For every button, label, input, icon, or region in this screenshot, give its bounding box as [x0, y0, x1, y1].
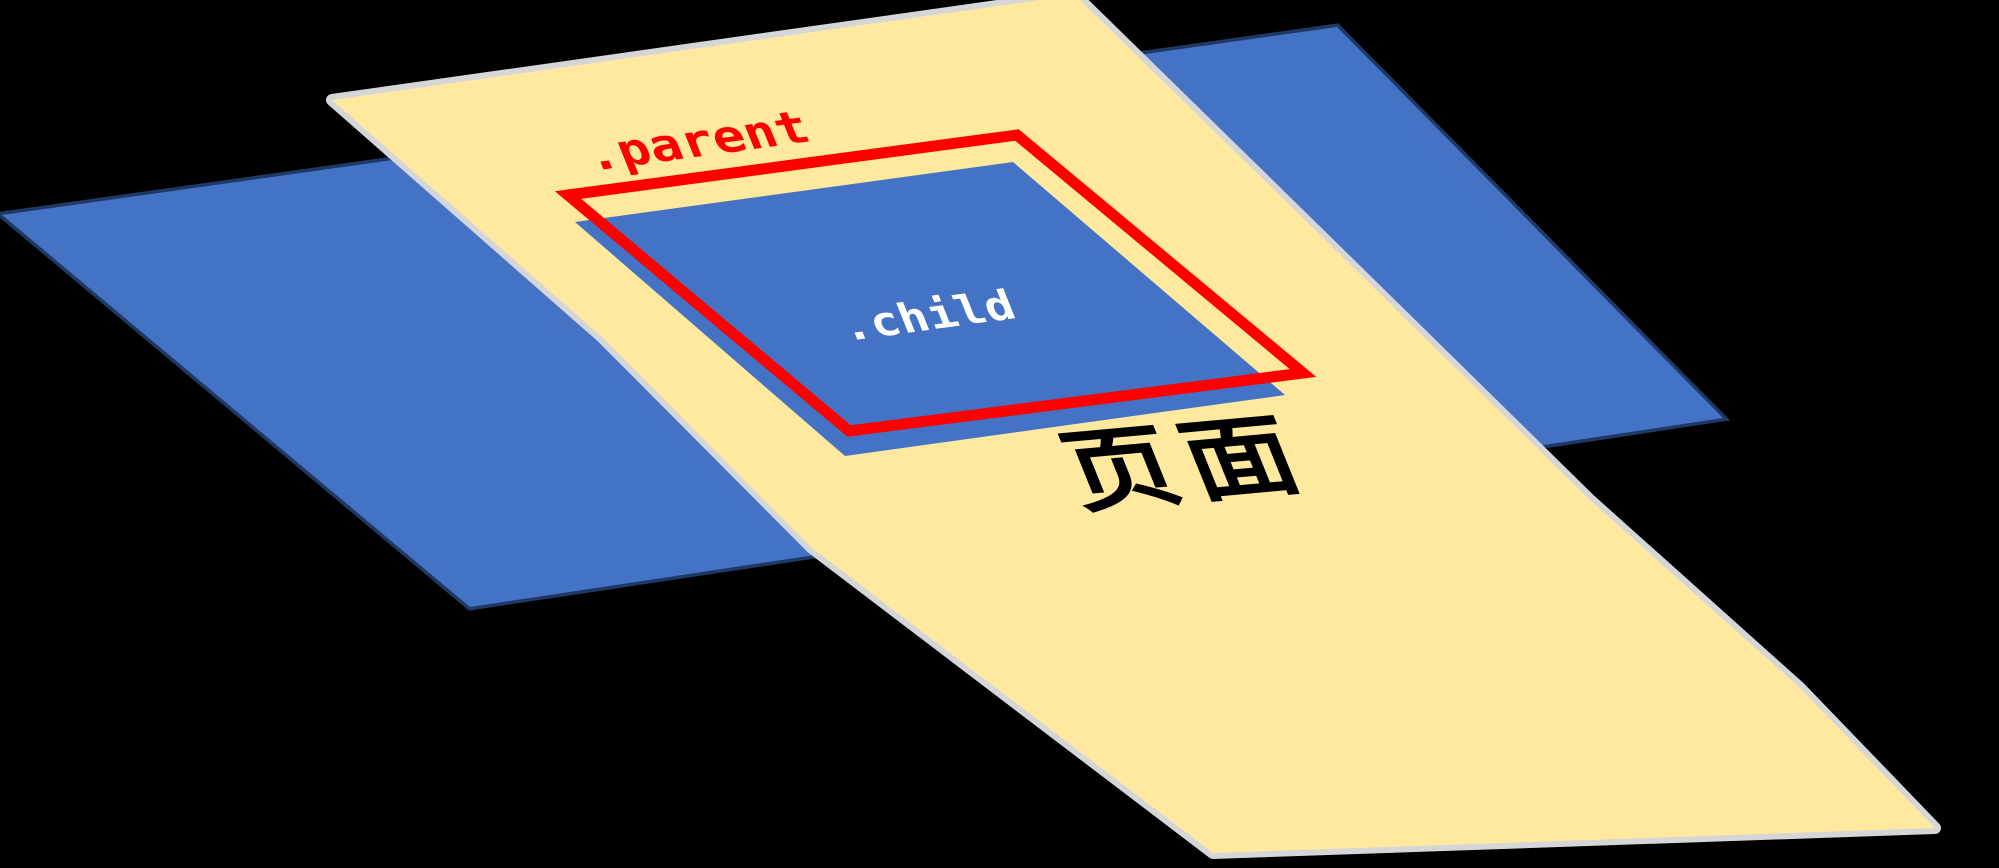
page-label: 页面 [1047, 401, 1326, 525]
css-position-diagram: .parent .child 页面 [0, 0, 1999, 868]
